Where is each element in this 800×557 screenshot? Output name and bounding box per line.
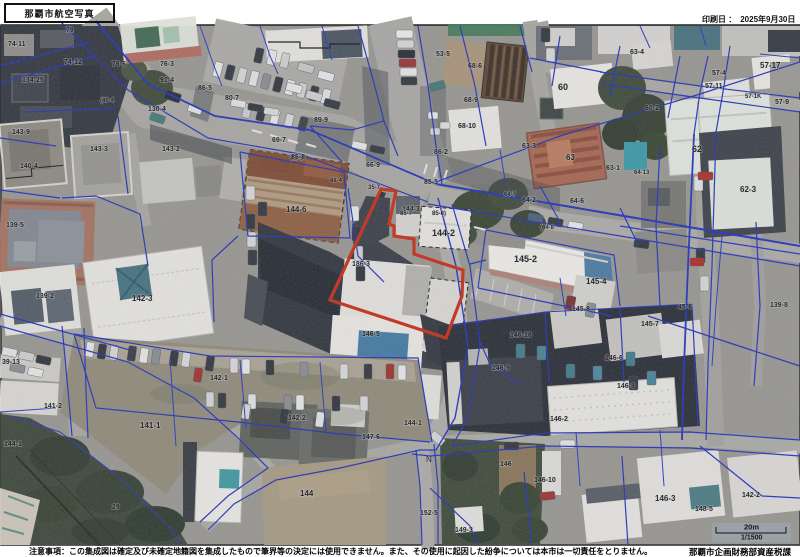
svg-text:1/1500: 1/1500 <box>741 535 763 542</box>
svg-text:20m: 20m <box>744 523 759 532</box>
